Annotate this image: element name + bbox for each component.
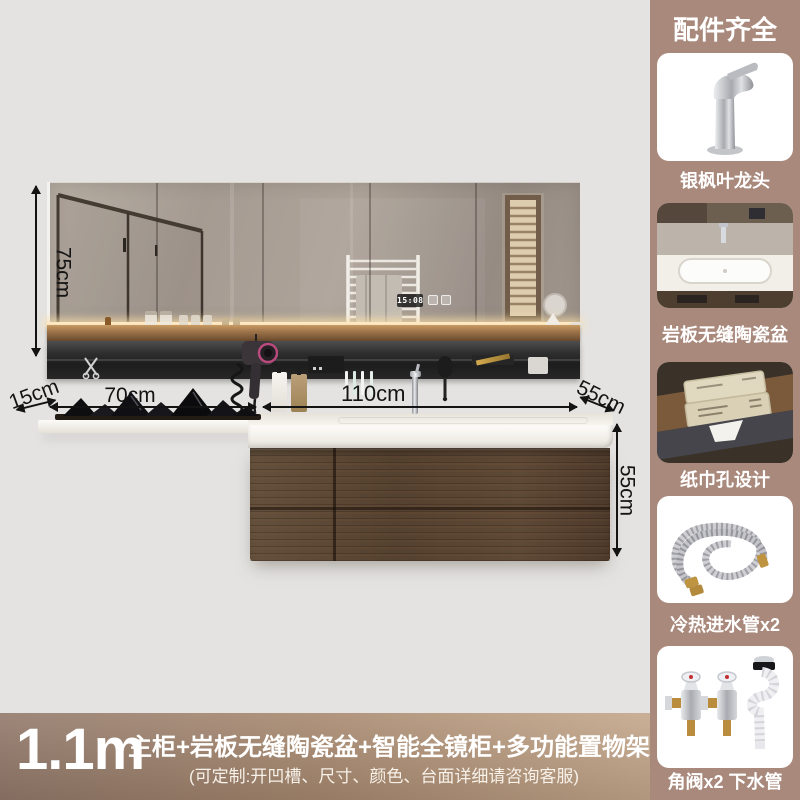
wood-display-shelf [47,325,580,341]
angle-valve [665,672,701,736]
drain-pipe [752,656,775,749]
countertop-surface [248,413,613,425]
accessory-card-faucet [657,53,793,161]
dim-arrow-mirror-height [35,186,37,356]
accessory-label-basin: 岩板无缝陶瓷盆 [650,321,800,347]
drawer-gap-vertical [333,448,336,561]
mirror-cabinet [47,182,580,323]
mirror-reflections [50,183,583,324]
valves-drain-icon [657,646,793,768]
accessory-card-valves [657,646,793,768]
defog-button-icon [428,295,438,305]
countertop-front [248,425,613,448]
inlet-hoses-icon [657,496,793,603]
drawer-gap-horizontal [250,507,610,510]
accessory-card-basin [657,203,793,308]
comb-tray [472,355,514,365]
stone-decor [53,384,268,424]
accessories-panel: 配件齐全 银枫叶龙头 [650,0,800,800]
window-blinds-reflection [502,193,544,323]
tissue-hole-icon [657,362,793,463]
accessory-label-hoses: 冷热进水管x2 [650,611,800,637]
accessories-title: 配件齐全 [650,10,800,47]
bathroom-scene: 15:08 [0,0,650,713]
scissors-icon [82,355,100,381]
light-button-icon [441,295,451,305]
footer-bar: 1.1m 主柜+岩板无缝陶瓷盆+智能全镜柜+多功能置物架 (可定制:开凹槽、尺寸… [0,713,650,800]
shaver [433,355,457,403]
faucet-icon [657,53,793,161]
dim-label-cabinet-width: 110cm [341,383,401,405]
rail-dispenser [528,357,548,374]
product-headline: 主柜+岩板无缝陶瓷盆+智能全镜柜+多功能置物架 [128,727,640,762]
integrated-basin-rim [338,417,588,424]
product-showcase: 15:08 [0,0,800,800]
product-size: 1.1m [16,721,144,779]
basin-faucet [412,376,418,414]
accessory-card-hoses [657,496,793,603]
ceramic-basin-icon [657,203,793,308]
gold-comb [476,354,510,366]
angle-valve [701,672,737,736]
dim-arrow-cabinet-height [616,424,618,556]
dim-label-mirror-height: 75cm [53,247,74,299]
accessory-label-valves: 角阀x2 下水管 [650,768,800,794]
dim-arrow-shelf-width [50,406,256,408]
accessory-label-tissue: 纸巾孔设计 [650,466,800,492]
shower-enclosure-reflection [58,195,202,323]
rail-socket-panel [308,356,344,373]
customization-note: (可定制:开凹槽、尺寸、颜色、台面详细请咨询客服) [128,762,640,787]
wood-grain [250,448,610,561]
dim-label-cabinet-height: 55cm [617,465,638,517]
accessory-card-tissue [657,362,793,463]
dim-arrow-cabinet-width [263,406,577,408]
vanity-cabinet [250,448,610,561]
accessory-label-faucet: 银枫叶龙头 [650,167,800,193]
